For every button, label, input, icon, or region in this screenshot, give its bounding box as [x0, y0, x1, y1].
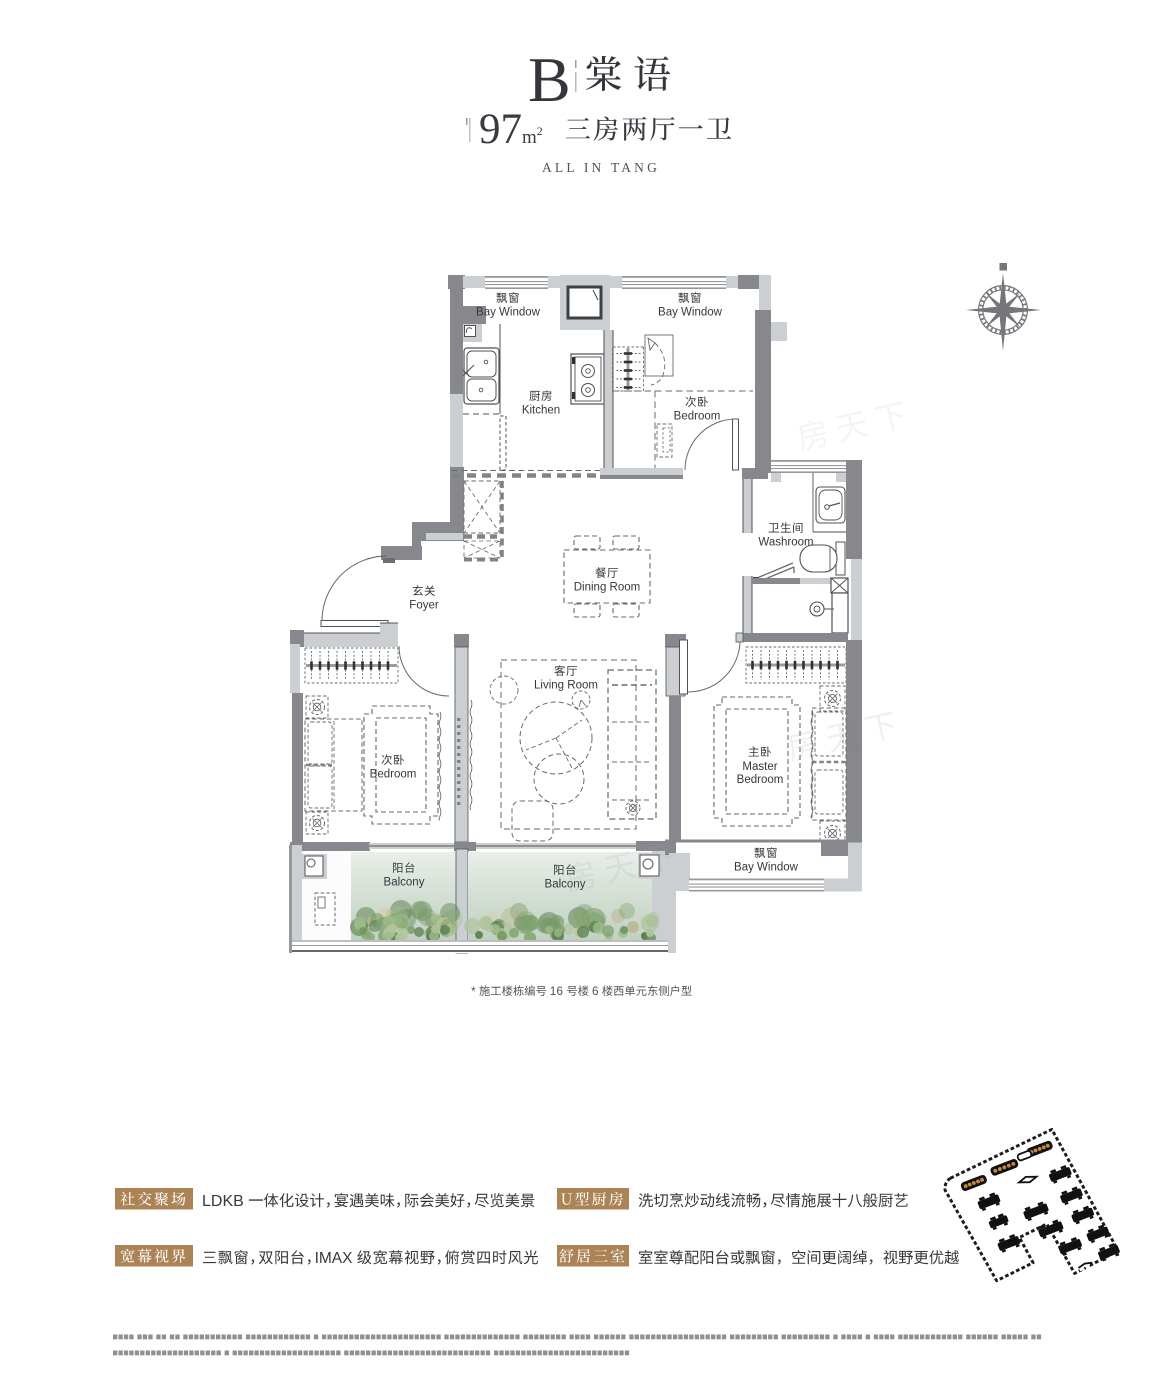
svg-text:Bedroom: Bedroom: [737, 774, 784, 786]
svg-text:Master: Master: [742, 761, 777, 773]
svg-text:Bay Window: Bay Window: [476, 307, 541, 319]
svg-text:16: 16: [550, 984, 564, 998]
svg-text:IMAX: IMAX: [315, 1250, 354, 1267]
svg-text:Washroom: Washroom: [758, 537, 813, 549]
svg-text:Foyer: Foyer: [409, 600, 439, 612]
svg-text:Bay Window: Bay Window: [658, 307, 723, 319]
svg-text:Bedroom: Bedroom: [674, 411, 721, 423]
svg-text:Balcony: Balcony: [384, 877, 425, 889]
svg-text:Bay Window: Bay Window: [734, 862, 799, 874]
svg-text:Bedroom: Bedroom: [370, 769, 417, 781]
svg-text:Kitchen: Kitchen: [522, 405, 560, 417]
svg-text:6: 6: [592, 984, 599, 998]
svg-text:ALL IN TANG: ALL IN TANG: [542, 160, 660, 175]
svg-text:*: *: [471, 984, 476, 998]
svg-text:Dining Room: Dining Room: [574, 582, 640, 594]
svg-text:LDKB: LDKB: [202, 1193, 244, 1210]
svg-text:B: B: [528, 44, 571, 115]
svg-text:Living Room: Living Room: [534, 680, 598, 692]
